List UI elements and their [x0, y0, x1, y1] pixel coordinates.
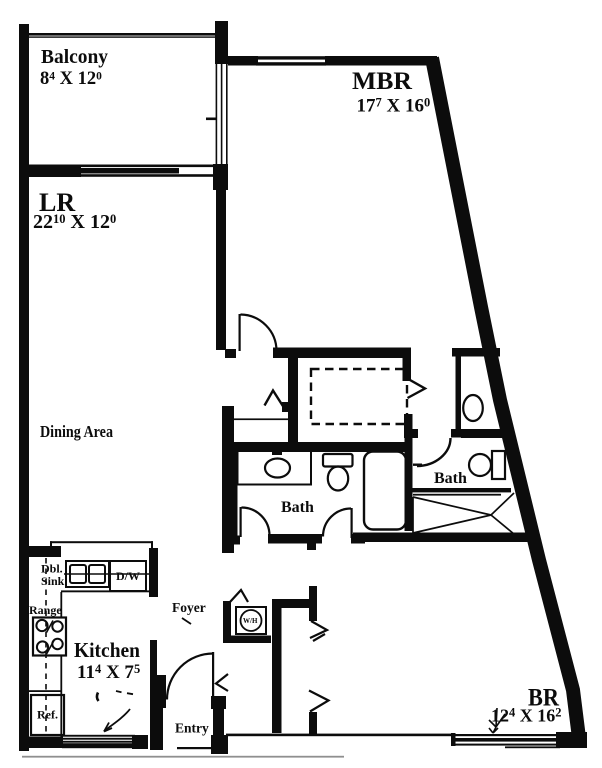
- svg-text:Entry: Entry: [175, 721, 209, 736]
- svg-text:D/W: D/W: [116, 569, 140, 583]
- svg-text:124 X 162: 124 X 162: [491, 706, 562, 726]
- svg-text:Bath: Bath: [281, 499, 314, 516]
- svg-text:Range: Range: [29, 603, 62, 617]
- svg-text:2210 X 120: 2210 X 120: [33, 211, 116, 233]
- svg-text:84 X 120: 84 X 120: [40, 69, 102, 89]
- svg-text:Sink: Sink: [41, 574, 65, 588]
- svg-text:177 X 160: 177 X 160: [357, 96, 431, 117]
- svg-text:Ref.: Ref.: [37, 708, 58, 722]
- svg-text:MBR: MBR: [352, 68, 413, 95]
- svg-text:Kitchen: Kitchen: [74, 638, 140, 662]
- svg-text:W/H: W/H: [243, 617, 258, 625]
- svg-text:Bath: Bath: [434, 470, 467, 487]
- svg-text:Dining Area: Dining Area: [40, 422, 113, 441]
- svg-text:Balcony: Balcony: [41, 46, 109, 68]
- svg-text:114 X 75: 114 X 75: [77, 662, 140, 683]
- svg-text:Foyer: Foyer: [172, 600, 206, 615]
